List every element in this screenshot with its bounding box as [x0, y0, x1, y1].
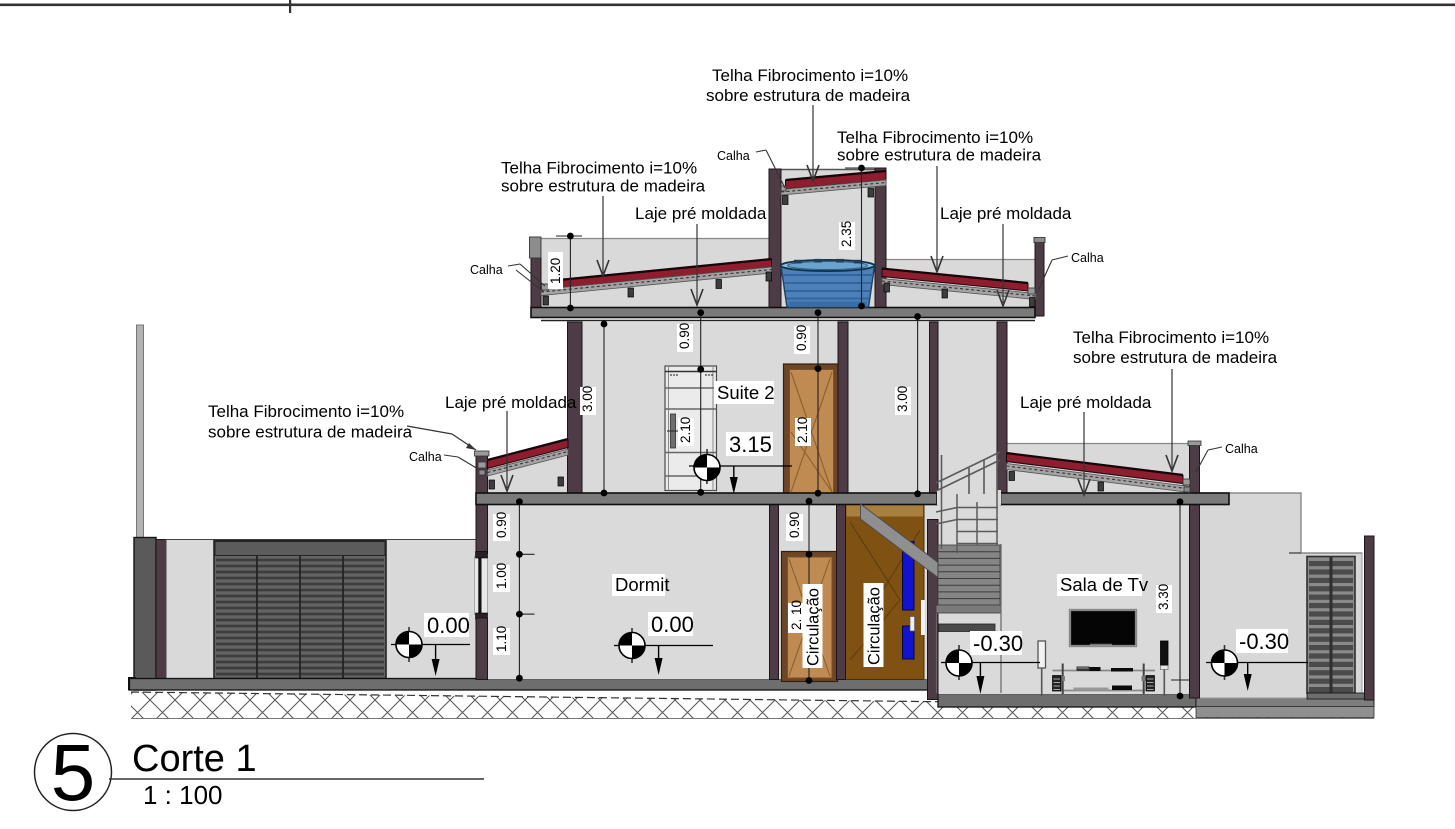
svg-text:Dormit: Dormit	[615, 574, 669, 595]
svg-text:1.00: 1.00	[494, 563, 509, 589]
svg-text:Laje pré moldada: Laje pré moldada	[445, 393, 577, 412]
svg-text:3.15: 3.15	[729, 432, 772, 457]
svg-text:-0.30: -0.30	[973, 631, 1023, 656]
svg-text:0.90: 0.90	[494, 512, 509, 538]
svg-text:0.90: 0.90	[787, 512, 802, 538]
svg-text:sobre estrutura de madeira: sobre estrutura de madeira	[208, 423, 413, 442]
svg-text:3.30: 3.30	[1156, 584, 1171, 610]
svg-text:Telha Fibrocimento i=10%: Telha Fibrocimento i=10%	[208, 402, 404, 421]
svg-text:2.35: 2.35	[839, 221, 854, 247]
svg-text:2. 10: 2. 10	[789, 600, 804, 630]
svg-text:Calha: Calha	[1071, 251, 1104, 265]
svg-text:Circulação: Circulação	[866, 587, 884, 665]
svg-text:0.00: 0.00	[427, 613, 470, 638]
svg-text:2.10: 2.10	[678, 417, 693, 443]
svg-text:3.00: 3.00	[580, 386, 595, 412]
svg-text:Laje pré moldada: Laje pré moldada	[1020, 393, 1152, 412]
svg-text:Telha Fibrocimento i=10%: Telha Fibrocimento i=10%	[1073, 328, 1269, 347]
svg-text:1 : 100: 1 : 100	[143, 780, 223, 810]
svg-text:2.10: 2.10	[795, 417, 810, 443]
svg-text:0.90: 0.90	[677, 323, 692, 349]
svg-text:sobre estrutura de madeira: sobre estrutura de madeira	[501, 177, 706, 196]
svg-text:Telha Fibrocimento i=10%: Telha Fibrocimento i=10%	[501, 159, 697, 178]
svg-text:0.90: 0.90	[794, 325, 809, 351]
svg-text:Calha: Calha	[1225, 442, 1258, 456]
svg-text:1.10: 1.10	[494, 626, 509, 652]
svg-text:Telha Fibrocimento i=10%: Telha Fibrocimento i=10%	[837, 128, 1033, 147]
svg-text:5: 5	[51, 728, 96, 817]
svg-text:Suite 2: Suite 2	[717, 382, 775, 403]
svg-text:Calha: Calha	[470, 263, 503, 277]
svg-text:Telha Fibrocimento i=10%: Telha Fibrocimento i=10%	[712, 66, 908, 85]
svg-text:Laje pré moldada: Laje pré moldada	[635, 204, 767, 223]
svg-text:Calha: Calha	[717, 149, 750, 163]
svg-text:Corte 1: Corte 1	[132, 738, 257, 780]
svg-text:sobre estrutura de madeira: sobre estrutura de madeira	[1073, 348, 1278, 367]
svg-text:Laje pré moldada: Laje pré moldada	[940, 204, 1072, 223]
svg-text:sobre estrutura de madeira: sobre estrutura de madeira	[837, 146, 1042, 165]
svg-text:Sala de Tv: Sala de Tv	[1060, 574, 1149, 595]
svg-text:3.00: 3.00	[895, 386, 910, 412]
svg-text:1.20: 1.20	[548, 258, 563, 284]
svg-text:0.00: 0.00	[651, 612, 694, 637]
svg-text:Circulação: Circulação	[805, 588, 823, 666]
svg-text:sobre estrutura de madeira: sobre estrutura de madeira	[706, 86, 911, 105]
svg-text:Calha: Calha	[409, 450, 442, 464]
svg-text:-0.30: -0.30	[1239, 629, 1289, 654]
